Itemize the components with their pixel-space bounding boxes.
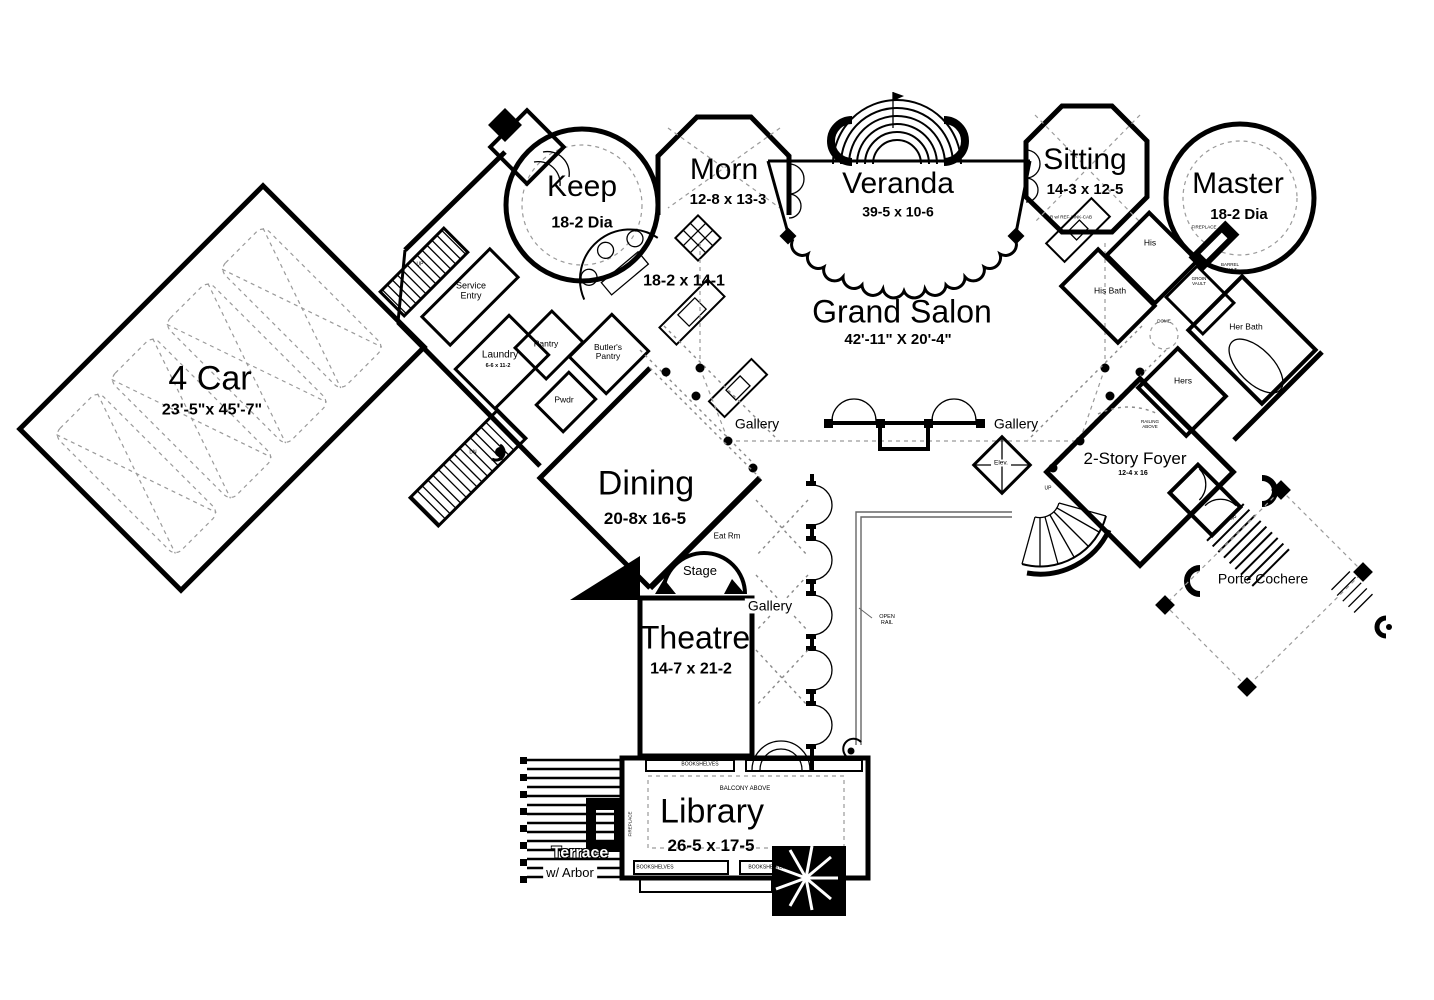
grand-curved-stair xyxy=(1022,503,1109,574)
his-bath-label: His Bath xyxy=(1094,286,1126,295)
keep-label: Keep xyxy=(547,171,617,203)
bookshelves-label-br: BOOKSHELVES xyxy=(748,865,785,870)
spiral-stair xyxy=(772,846,846,916)
gallery-label-left: Gallery xyxy=(735,416,779,431)
up-label-service: UP xyxy=(417,262,424,267)
salon-french-doors xyxy=(832,399,976,421)
library-label: Library xyxy=(660,794,764,831)
railing-above-label: RAILING ABOVE xyxy=(1141,420,1159,430)
pwdr-label: Pwdr xyxy=(554,395,573,404)
sitting-label: Sitting xyxy=(1043,144,1126,176)
library-fireplace-label: FIREPLACE xyxy=(629,811,634,836)
sitting-dim: 14-3 x 12-5 xyxy=(1047,182,1124,198)
foyer-label: 2-Story Foyer xyxy=(1084,450,1187,468)
terrace-sub-label: w/ Arbor xyxy=(543,866,597,880)
dome-label: DOME xyxy=(1157,320,1171,325)
gallery-corridor xyxy=(752,474,832,772)
hers-label: Hers xyxy=(1174,376,1192,385)
pantry-label: Pantry xyxy=(534,339,559,348)
stage-label: Stage xyxy=(680,564,720,578)
porte-cochere-label: Porte Cochere xyxy=(1218,571,1308,586)
kitchen-dim: 18-2 x 14-1 xyxy=(643,272,725,289)
garage-dim: 23'-5"x 45'-7" xyxy=(162,401,262,418)
gallery-label-right: Gallery xyxy=(994,416,1038,431)
master-fireplace-label: FIREPLACE xyxy=(1191,226,1216,231)
open-rail-label: OPEN RAIL xyxy=(879,615,895,627)
up-label-stair: UP xyxy=(1045,486,1052,491)
terrace-label: Terrace xyxy=(552,844,609,861)
master-label: Master xyxy=(1192,168,1284,200)
theatre-label: Theatre xyxy=(640,621,750,656)
up-label-entry: UP xyxy=(1230,516,1237,521)
gallery-label-mid: Gallery xyxy=(745,598,795,613)
morn-dim: 12-8 x 13-3 xyxy=(690,192,767,208)
his-label: His xyxy=(1144,238,1156,247)
grand-salon-dim: 42'-11" X 20'-4" xyxy=(844,332,951,348)
service-entry-label: Service Entry xyxy=(456,281,486,300)
laundry-label: Laundry xyxy=(482,351,518,362)
master-dim: 18-2 Dia xyxy=(1210,207,1268,223)
balcony-above-label: BALCONY ABOVE xyxy=(720,786,771,792)
bar-note-label: BAR w/ REF-SINK-CAB xyxy=(1044,216,1092,221)
open-rail-structure xyxy=(843,512,1012,756)
grand-salon-label: Grand Salon xyxy=(812,295,992,330)
library-dim: 26-5 x 17-5 xyxy=(668,837,755,855)
veranda-dim: 39-5 x 10-6 xyxy=(862,204,934,219)
dome-outline xyxy=(1150,321,1178,349)
dining-label: Dining xyxy=(598,466,694,503)
morn-label: Morn xyxy=(690,154,758,186)
veranda-label: Veranda xyxy=(842,168,954,200)
garage-label: 4 Car xyxy=(168,361,251,398)
dining-dim: 20-8x 16-5 xyxy=(604,510,686,528)
floor-plan-canvas: Keep 18-2 Dia Morn 12-8 x 13-3 18-2 x 14… xyxy=(0,0,1434,1000)
foyer-dim: 12-4 x 16 xyxy=(1118,470,1148,478)
grand-salon-structure xyxy=(662,239,1167,473)
bookshelves-label-bl: BOOKSHELVES xyxy=(636,865,673,870)
butlers-pantry-label: Butler's Pantry xyxy=(594,343,622,361)
keep-chimney xyxy=(488,108,522,142)
elevator-label: Elev. xyxy=(991,459,1011,466)
dn-label-back: DN xyxy=(469,450,476,455)
laundry-dim: 6-6 x 11-2 xyxy=(486,364,511,370)
salon-scalloped-wall xyxy=(792,239,1017,298)
eat-rm-label: Eat Rm xyxy=(714,533,741,542)
barrel-vault-label: BARREL VAULT xyxy=(1221,263,1239,273)
her-bath-label: Her Bath xyxy=(1229,322,1263,331)
service-stair xyxy=(380,228,468,316)
groin-vault-label: GROIN VAULT xyxy=(1192,277,1207,287)
veranda-arched-steps xyxy=(833,100,961,164)
back-stair xyxy=(410,410,526,526)
bookshelves-label-top: BOOKSHELVES xyxy=(681,762,718,767)
theatre-dim: 14-7 x 21-2 xyxy=(650,660,732,677)
keep-dim: 18-2 Dia xyxy=(551,214,612,231)
